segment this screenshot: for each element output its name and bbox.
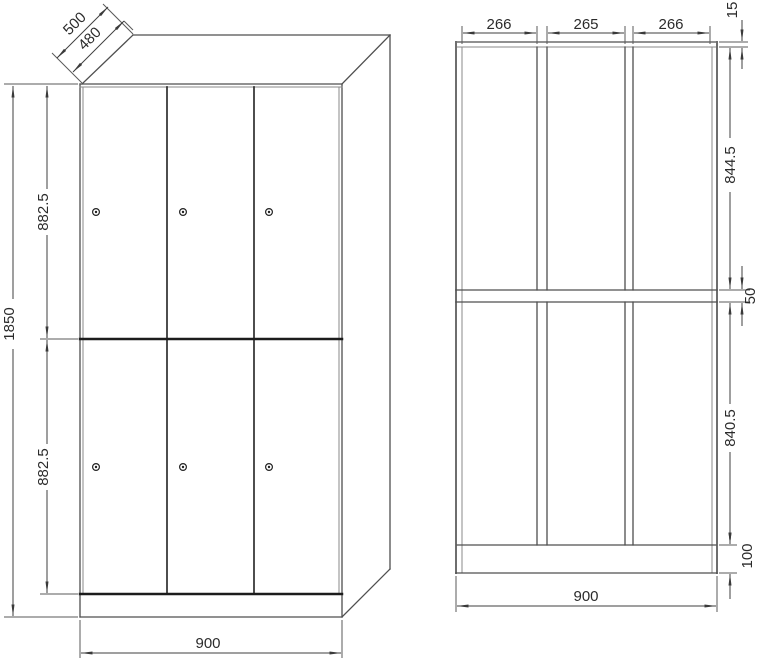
dimension-right-stack: 15 844.5 50 840.5 100 [719, 2, 757, 599]
side-face-top-edge [342, 35, 390, 84]
lock-icon [266, 209, 273, 216]
extension-line [103, 4, 133, 34]
dimension-heights: 1850 882.5 882.5 [1, 84, 78, 617]
dimension-label-total-height: 1850 [1, 307, 18, 340]
dimension-compartments: 266 265 266 [462, 16, 710, 44]
dimension-label-compartment-middle: 265 [573, 16, 598, 33]
side-face-bottom-edge [342, 569, 390, 617]
dimension-label-compartment-right: 266 [658, 16, 683, 33]
lock-icon [93, 209, 100, 216]
lock-icon [180, 209, 187, 216]
dimension-label-shelf: 50 [742, 288, 757, 305]
dimension-width-front: 900 [80, 620, 342, 658]
front-isometric-view: 500 480 1850 882.5 882.5 900 [1, 4, 390, 658]
lock-icon [93, 464, 100, 471]
extension-line [124, 21, 133, 30]
dimension-label-width-front: 900 [195, 635, 220, 652]
lock-icon [266, 464, 273, 471]
dimension-label-upper-compartment: 844.5 [722, 146, 739, 184]
front-section-view: 266 265 266 15 844.5 50 [456, 2, 757, 612]
carcass-structure [456, 42, 717, 573]
dimension-depth: 500 480 [52, 4, 133, 83]
dimension-label-width-section: 900 [573, 588, 598, 605]
dimension-label-upper-door: 882.5 [35, 193, 52, 231]
door-grid [80, 87, 342, 594]
lock-icon [180, 464, 187, 471]
dimension-label-plinth: 100 [739, 543, 756, 568]
dimension-label-compartment-left: 266 [486, 16, 511, 33]
dimension-label-lower-door: 882.5 [35, 448, 52, 486]
technical-drawing-page: 500 480 1850 882.5 882.5 900 [0, 0, 757, 658]
dimension-width-section: 900 [456, 576, 717, 612]
locker-dimension-drawing: 500 480 1850 882.5 882.5 900 [0, 0, 757, 658]
dimension-label-lower-compartment: 840.5 [722, 409, 739, 447]
dimension-label-top-panel: 15 [724, 2, 741, 19]
cabinet-body-outline [80, 35, 390, 617]
